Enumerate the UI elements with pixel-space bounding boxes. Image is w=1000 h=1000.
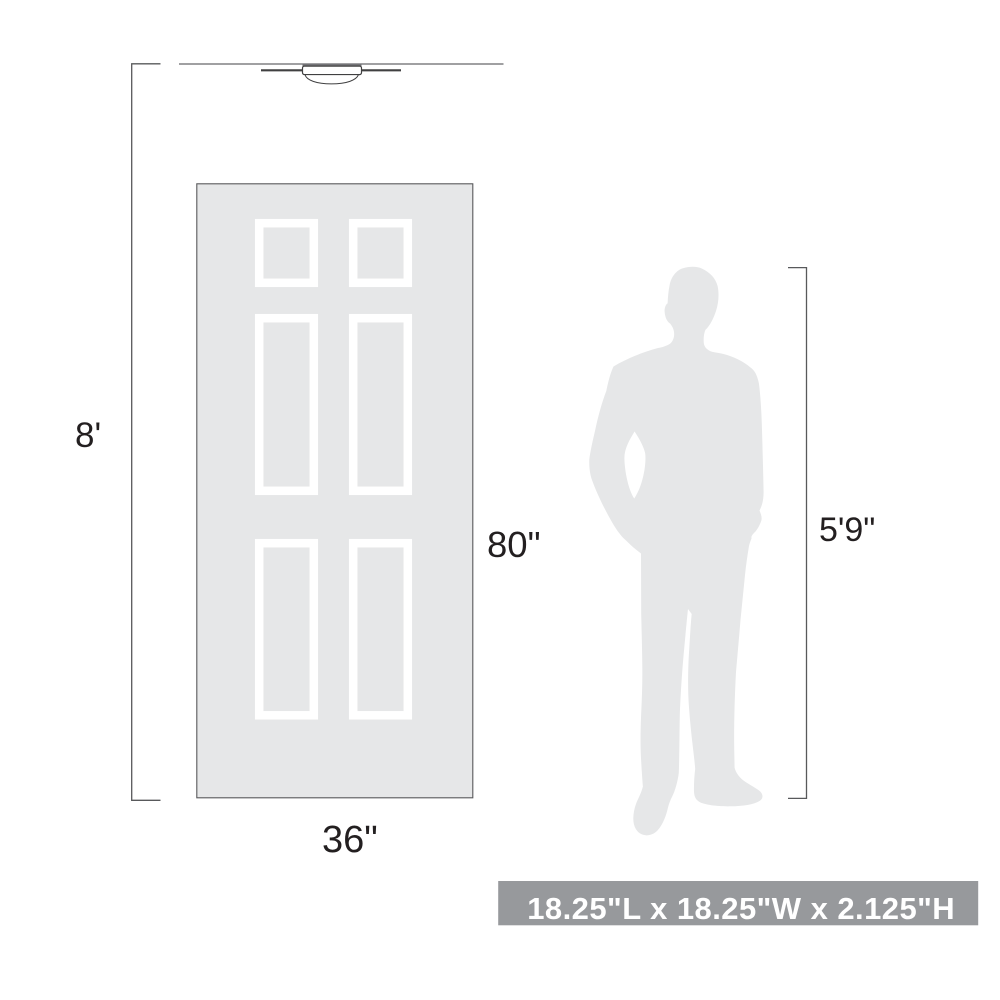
svg-text:80": 80" xyxy=(487,524,541,565)
svg-text:5'9": 5'9" xyxy=(819,511,875,549)
svg-text:18.25"L x 18.25"W x 2.125"H: 18.25"L x 18.25"W x 2.125"H xyxy=(527,891,955,926)
svg-text:8': 8' xyxy=(75,416,101,455)
svg-text:36": 36" xyxy=(322,819,378,861)
